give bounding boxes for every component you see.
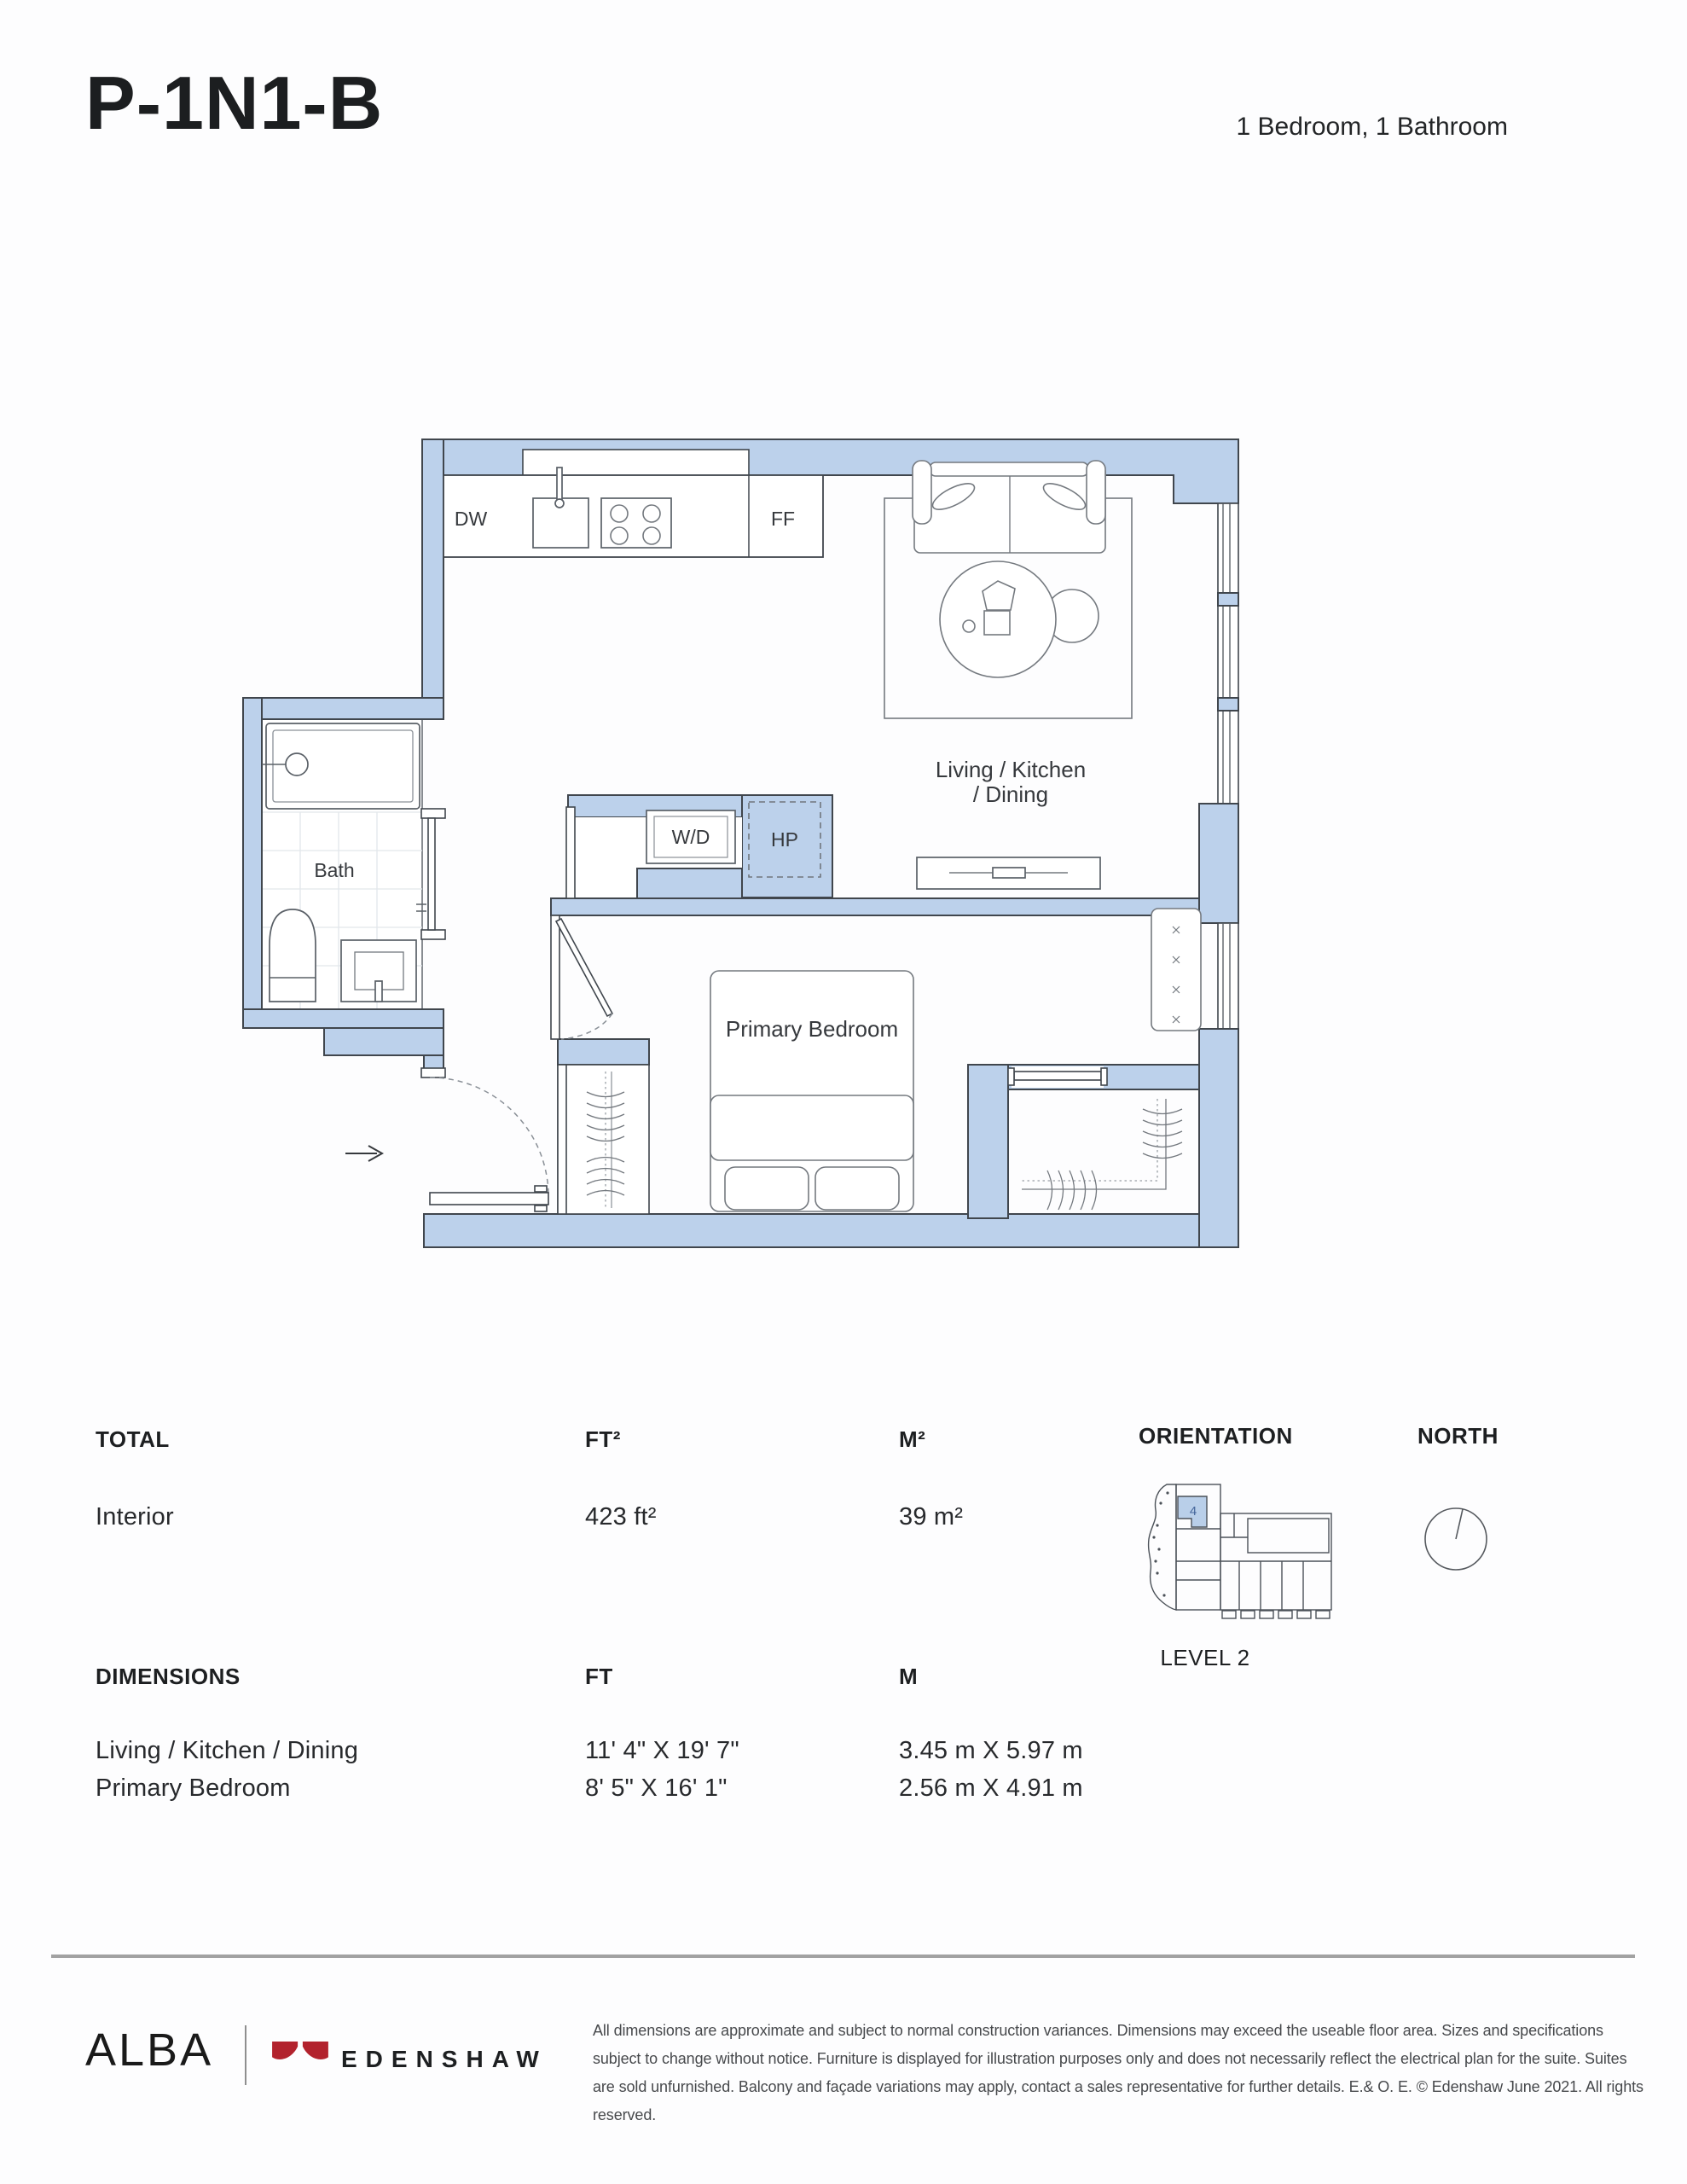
total-header: TOTAL — [96, 1426, 170, 1453]
dim-row-ft: 11' 4" X 19' 7" — [585, 1737, 739, 1765]
door-jamb — [421, 1068, 445, 1077]
orientation-keyplan: 4 — [1120, 1478, 1346, 1640]
wall-bath-bottom — [243, 1009, 443, 1028]
wall-left-upper — [422, 439, 443, 717]
dim-row-ft: 8' 5" X 16' 1" — [585, 1774, 728, 1803]
vanity-faucet-icon — [375, 981, 382, 1002]
tub-drain-icon — [286, 753, 308, 775]
door-jamb — [1101, 1068, 1107, 1085]
door-jamb — [421, 809, 445, 818]
wd-label: W/D — [672, 826, 710, 848]
bed-pillow — [815, 1167, 899, 1210]
wall-wd-bottom — [637, 868, 742, 898]
orientation-header: ORIENTATION — [1139, 1423, 1293, 1449]
dim-row-m: 2.56 m X 4.91 m — [899, 1774, 1083, 1803]
wardrobe — [1151, 909, 1201, 1031]
hanging-clothes-icon — [1143, 1109, 1182, 1159]
keyplan-balconies — [1222, 1611, 1330, 1618]
entry-door-swing — [430, 1077, 548, 1196]
toilet — [270, 909, 316, 1002]
north-compass-icon — [1419, 1501, 1493, 1575]
bed-duvet — [710, 1095, 913, 1160]
total-row-m: 39 m² — [899, 1503, 963, 1531]
hanging-clothes-icon — [1047, 1170, 1097, 1210]
coffee-table — [940, 561, 1056, 677]
wall-above-entry-closet — [558, 1039, 649, 1065]
keyplan-unit-number: 4 — [1190, 1504, 1197, 1519]
logo-separator — [245, 2025, 246, 2085]
window-mullion — [1218, 593, 1238, 606]
sofa-arm — [1087, 461, 1105, 524]
footer-divider — [51, 1955, 1635, 1958]
living-label-line1: Living / Kitchen — [936, 757, 1086, 782]
unit-type-label: 1 Bedroom, 1 Bathroom — [1023, 113, 1508, 142]
wall-bottom — [424, 1214, 1238, 1247]
door-handle-icon — [535, 1205, 547, 1211]
entry-closet-wall — [558, 1065, 566, 1214]
bath-label: Bath — [314, 859, 354, 881]
dimensions-ft-header: FT — [585, 1664, 613, 1690]
door-jamb — [1008, 1068, 1014, 1085]
floorplan-sheet: P-1N1-B 1 Bedroom, 1 Bathroom — [0, 0, 1687, 2184]
window-bedroom — [1218, 923, 1238, 1029]
keyplan-interior-lines — [1176, 1513, 1331, 1610]
north-header: NORTH — [1417, 1423, 1499, 1449]
total-row-label: Interior — [96, 1503, 174, 1531]
entry-closet — [558, 1065, 649, 1214]
faucet-icon — [555, 499, 564, 508]
dishwasher-label: DW — [455, 508, 488, 530]
bed-pillow — [725, 1167, 809, 1210]
wall-bath-left — [243, 698, 262, 1028]
dim-row-label: Living / Kitchen / Dining — [96, 1737, 358, 1765]
closet-sliding-door — [1014, 1072, 1101, 1080]
wall-bedroom-living — [551, 898, 1199, 915]
wall-bath-top — [243, 698, 443, 719]
dim-row-label: Primary Bedroom — [96, 1774, 291, 1803]
wall-entry-corner — [324, 1028, 443, 1055]
dim-row-m: 3.45 m X 5.97 m — [899, 1737, 1083, 1765]
page-title: P-1N1-B — [85, 60, 383, 147]
sofa-back — [930, 462, 1088, 476]
bedroom-door-swing — [561, 1014, 612, 1039]
door-handle-icon — [535, 1186, 547, 1192]
wall-right-corner — [1199, 1029, 1238, 1247]
keyplan-outline — [1149, 1484, 1176, 1610]
bedroom-label: Primary Bedroom — [726, 1016, 898, 1042]
total-ft-header: FT² — [585, 1426, 621, 1453]
dimensions-header: DIMENSIONS — [96, 1664, 241, 1690]
living-label-line2: / Dining — [973, 781, 1048, 807]
edenshaw-logo-icon — [271, 2041, 329, 2066]
alba-logo: ALBA — [85, 2024, 213, 2077]
wall-closet-left — [968, 1065, 1008, 1218]
level-label: LEVEL 2 — [1120, 1645, 1290, 1671]
disclaimer-text: All dimensions are approximate and subje… — [593, 2017, 1646, 2129]
window-living — [1218, 503, 1238, 804]
hp-label: HP — [771, 828, 798, 851]
bath-pocket-door — [428, 818, 435, 930]
closet-shelf-dotted — [1022, 1099, 1157, 1181]
wall-bedroom-west — [551, 915, 559, 1039]
total-m-header: M² — [899, 1426, 925, 1453]
bedroom-door — [556, 919, 612, 1016]
total-row-ft: 423 ft² — [585, 1503, 657, 1531]
tv-icon — [993, 868, 1025, 878]
dimensions-m-header: M — [899, 1664, 918, 1690]
wall-window-pier — [1199, 804, 1238, 923]
wall-wd-thin — [566, 807, 575, 898]
edenshaw-logo-text: EDENSHAW — [341, 2046, 548, 2073]
floor-plan-drawing: HP DW FF Living / Kitchen / Dining — [239, 427, 1241, 1250]
keyplan-unit-block — [1248, 1519, 1329, 1553]
sofa-arm — [913, 461, 931, 524]
faucet-icon — [557, 468, 562, 502]
fridge-label: FF — [771, 508, 795, 530]
door-jamb — [421, 930, 445, 939]
window-mullion — [1218, 698, 1238, 711]
entry-door — [430, 1193, 548, 1205]
